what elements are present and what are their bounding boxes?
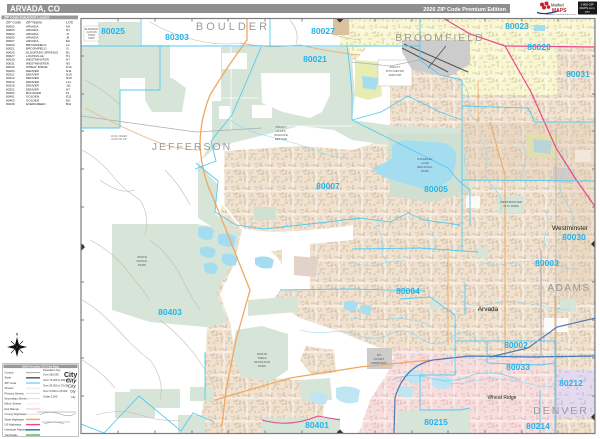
- svg-text:80033: 80033: [506, 362, 530, 372]
- svg-text:CANYON DR: CANYON DR: [111, 137, 127, 141]
- svg-text:ADAMS: ADAMS: [547, 283, 590, 294]
- svg-text:80212: 80212: [559, 378, 583, 388]
- svg-text:REFUGE: REFUGE: [275, 137, 288, 141]
- svg-text:America's Leading Map Source: America's Leading Map Source: [546, 13, 577, 16]
- svg-text:80439: 80439: [6, 102, 15, 106]
- svg-text:Over 5,000 to 25,000: Over 5,000 to 25,000: [43, 389, 68, 393]
- svg-text:80401: 80401: [305, 420, 329, 430]
- svg-text:US Highways: US Highways: [5, 423, 22, 427]
- svg-text:City: City: [71, 395, 76, 399]
- svg-text:80403: 80403: [158, 307, 182, 317]
- svg-text:CEMETERY: CEMETERY: [371, 361, 388, 365]
- svg-text:State: State: [5, 376, 12, 380]
- svg-text:Arvada: Arvada: [478, 306, 499, 313]
- svg-text:ARVADA, CO: ARVADA, CO: [10, 5, 60, 14]
- svg-text:.com: .com: [584, 11, 590, 14]
- svg-text:80030: 80030: [562, 232, 586, 242]
- svg-text:Interstate Highways: Interstate Highways: [5, 428, 30, 432]
- svg-text:PARK: PARK: [138, 263, 146, 267]
- svg-text:80004: 80004: [396, 286, 420, 296]
- svg-text:80020: 80020: [527, 42, 551, 52]
- svg-text:80031: 80031: [566, 69, 590, 79]
- svg-text:Streets: Streets: [5, 386, 14, 390]
- svg-text:Over 250,000: Over 250,000: [43, 373, 59, 377]
- svg-text:Market: Market: [551, 3, 565, 8]
- svg-text:N: N: [16, 333, 19, 337]
- svg-text:MAPS.com: MAPS.com: [579, 6, 595, 10]
- svg-text:Toll Roads: Toll Roads: [5, 433, 19, 437]
- svg-text:80002: 80002: [504, 340, 528, 350]
- svg-text:80214: 80214: [526, 421, 550, 431]
- svg-text:City: City: [68, 384, 76, 389]
- svg-text:City: City: [70, 390, 76, 394]
- svg-text:MAPS: MAPS: [552, 8, 567, 14]
- svg-text:2026 Arvada, CO City Map: 2026 Arvada, CO City Map: [22, 365, 59, 369]
- svg-text:DENVER: DENVER: [533, 405, 589, 417]
- svg-text:Population Key: Population Key: [43, 368, 61, 372]
- svg-text:ZIP Code: ZIP Code: [5, 381, 17, 385]
- svg-text:PARK: PARK: [258, 364, 266, 368]
- svg-text:80025: 80025: [101, 26, 125, 36]
- svg-text:80007: 80007: [316, 181, 340, 191]
- svg-text:Minor Streets: Minor Streets: [5, 402, 22, 406]
- svg-text:State Highways: State Highways: [5, 417, 25, 421]
- svg-text:BOULDER: BOULDER: [196, 21, 270, 33]
- svg-text:JEFFERSON: JEFFERSON: [152, 141, 232, 153]
- svg-text:80005: 80005: [424, 184, 448, 194]
- svg-text:Westminster: Westminster: [552, 225, 589, 232]
- svg-text:80023: 80023: [505, 21, 529, 31]
- svg-text:AIRPORT: AIRPORT: [388, 73, 401, 77]
- svg-text:Exit Ramps: Exit Ramps: [5, 407, 20, 411]
- svg-text:80021: 80021: [303, 54, 327, 64]
- svg-text:80027: 80027: [311, 26, 335, 36]
- svg-text:PARK: PARK: [421, 169, 429, 173]
- svg-text:ZIP Code Index/Grid Locator: ZIP Code Index/Grid Locator: [4, 16, 50, 20]
- svg-text:80003: 80003: [535, 258, 559, 268]
- svg-text:PARK: PARK: [88, 37, 95, 40]
- svg-text:2026 ZIP Code Premium Edition: 2026 ZIP Code Premium Edition: [423, 7, 506, 13]
- svg-text:EVERGREEN: EVERGREEN: [26, 102, 45, 106]
- svg-text:80303: 80303: [165, 32, 189, 42]
- svg-text:80215: 80215: [424, 417, 448, 427]
- svg-text:Wheat Ridge: Wheat Ridge: [488, 395, 517, 401]
- svg-text:Primary Streets: Primary Streets: [5, 391, 25, 395]
- svg-text:County Highways: County Highways: [5, 412, 27, 416]
- svg-text:CITY PARK: CITY PARK: [503, 204, 519, 208]
- svg-text:BROOMFIELD: BROOMFIELD: [395, 32, 484, 44]
- svg-text:Under 5,000: Under 5,000: [43, 395, 58, 399]
- svg-text:County: County: [5, 371, 14, 375]
- svg-text:B11: B11: [66, 102, 72, 106]
- svg-text:Secondary Streets: Secondary Streets: [5, 397, 29, 401]
